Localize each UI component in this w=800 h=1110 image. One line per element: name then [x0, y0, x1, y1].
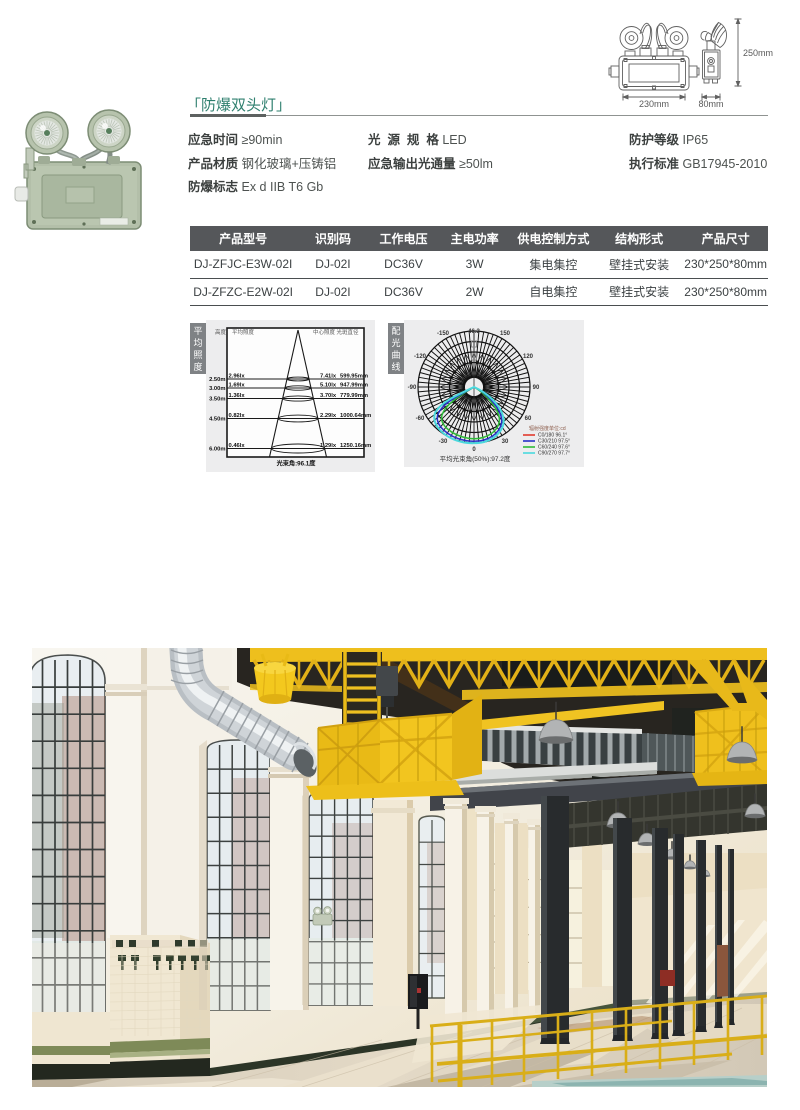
svg-text:6.00m: 6.00m: [209, 447, 225, 453]
svg-text:0.46lx: 0.46lx: [229, 443, 246, 449]
svg-text:3.50m: 3.50m: [209, 397, 225, 403]
svg-text:平均光束角(50%):97.2度: 平均光束角(50%):97.2度: [440, 454, 511, 463]
svg-text:中心照度 光斑直径: 中心照度 光斑直径: [313, 328, 359, 336]
svg-text:光束角:96.1度: 光束角:96.1度: [276, 460, 317, 468]
svg-text:60: 60: [525, 416, 532, 422]
svg-text:2.29lx: 2.29lx: [320, 413, 337, 419]
svg-text:80mm: 80mm: [698, 99, 723, 108]
svg-text:-60: -60: [416, 416, 425, 422]
svg-text:0.82lx: 0.82lx: [229, 413, 246, 419]
svg-text:250mm: 250mm: [743, 48, 773, 58]
svg-text:4.50m: 4.50m: [209, 417, 225, 423]
svg-text:3.00m: 3.00m: [209, 386, 225, 392]
svg-text:高度: 高度: [215, 328, 227, 336]
svg-text:90: 90: [533, 385, 540, 391]
svg-text:-90: -90: [408, 385, 417, 391]
svg-text:5.10lx: 5.10lx: [320, 383, 337, 389]
svg-text:C90/270 97.7°: C90/270 97.7°: [538, 451, 570, 457]
svg-text:120: 120: [523, 354, 534, 360]
svg-text:30: 30: [502, 439, 509, 445]
svg-text:1250.16mm: 1250.16mm: [340, 443, 371, 449]
svg-text:947.99mm: 947.99mm: [340, 383, 368, 389]
svg-text:2.50m: 2.50m: [209, 377, 225, 383]
svg-text:1000.64mm: 1000.64mm: [340, 413, 371, 419]
svg-text:150: 150: [500, 331, 511, 337]
svg-text:-120: -120: [414, 354, 427, 360]
svg-text:3.70lx: 3.70lx: [320, 393, 337, 399]
svg-text:辐射强度单位:cd: 辐射强度单位:cd: [529, 425, 566, 432]
svg-text:7.41lx: 7.41lx: [320, 374, 337, 380]
svg-text:599.95mm: 599.95mm: [340, 374, 368, 380]
svg-text:46.3: 46.3: [468, 329, 480, 335]
svg-text:779.99mm: 779.99mm: [340, 393, 368, 399]
svg-text:-150: -150: [437, 331, 450, 337]
svg-text:1.69lx: 1.69lx: [229, 383, 246, 389]
svg-text:230mm: 230mm: [639, 99, 669, 108]
svg-text:2.96lx: 2.96lx: [229, 374, 246, 380]
svg-text:1.36lx: 1.36lx: [229, 393, 246, 399]
svg-text:-30: -30: [439, 439, 448, 445]
svg-text:1.29lx: 1.29lx: [320, 443, 337, 449]
svg-text:平均照度: 平均照度: [232, 328, 255, 336]
